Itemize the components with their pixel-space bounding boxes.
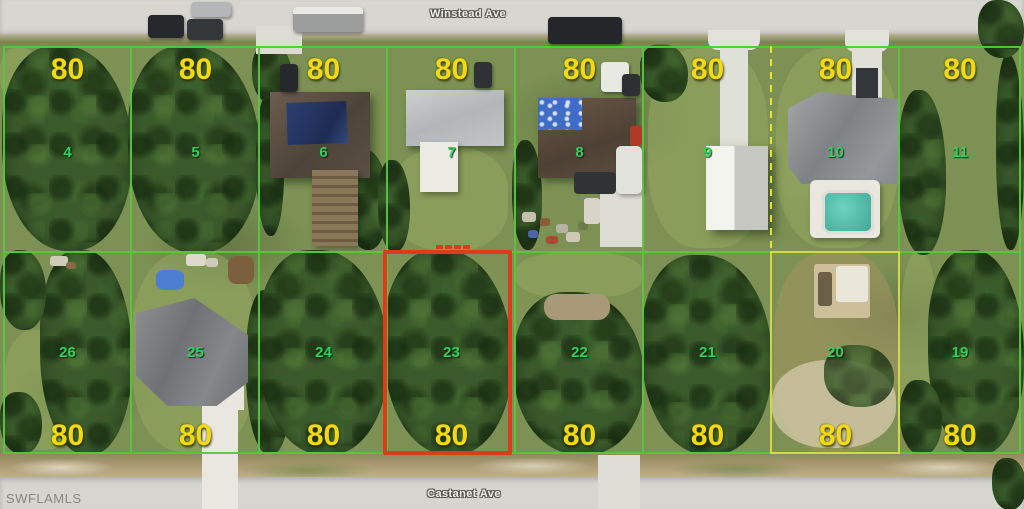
mls-watermark: SWFLAMLS xyxy=(6,491,82,506)
lot-dimension-label: 80 xyxy=(132,421,259,451)
lot-number-label: 10 xyxy=(772,145,899,160)
lot-number-label: 24 xyxy=(260,345,387,360)
lot-number-label: 9 xyxy=(644,145,771,160)
lot-number-label: 4 xyxy=(4,145,131,160)
lot-dimension-label: 80 xyxy=(260,421,387,451)
street-label-top: Winstead Ave xyxy=(388,8,548,20)
lot-number-label: 20 xyxy=(772,345,899,360)
lot-dimension-label: 80 xyxy=(4,421,131,451)
lot-number-label: 7 xyxy=(388,145,515,160)
lot-dimension-label: 80 xyxy=(260,55,387,85)
lot-dimension-label: 80 xyxy=(900,55,1020,85)
lot-dimension-label: 80 xyxy=(772,421,899,451)
lot-dimension-label: 80 xyxy=(388,55,515,85)
lot-dimension-label: 80 xyxy=(516,421,643,451)
lot-dimension-label: 80 xyxy=(772,55,899,85)
lot-number-label: 8 xyxy=(516,145,643,160)
lot-number-label: 26 xyxy=(4,345,131,360)
lot-dimension-label: 80 xyxy=(644,421,771,451)
lot-number-label: 11 xyxy=(900,145,1020,160)
lot-dimension-label: 80 xyxy=(900,421,1020,451)
lot-number-label: 19 xyxy=(900,345,1020,360)
lot-dimension-label: 80 xyxy=(388,421,515,451)
lot-number-label: 23 xyxy=(388,345,515,360)
lot-dimension-label: 80 xyxy=(132,55,259,85)
label-layer: 8048058068078088098010801180268025802480… xyxy=(0,0,1024,509)
lot-dimension-label: 80 xyxy=(516,55,643,85)
lot-number-label: 6 xyxy=(260,145,387,160)
lot-dimension-label: 80 xyxy=(4,55,131,85)
lot-number-label: 22 xyxy=(516,345,643,360)
lot-number-label: 5 xyxy=(132,145,259,160)
lot-number-label: 25 xyxy=(132,345,259,360)
parcel-map-image: 8048058068078088098010801180268025802480… xyxy=(0,0,1024,509)
lot-dimension-label: 80 xyxy=(644,55,771,85)
street-label-bottom: Castanet Ave xyxy=(384,488,544,500)
lot-number-label: 21 xyxy=(644,345,771,360)
